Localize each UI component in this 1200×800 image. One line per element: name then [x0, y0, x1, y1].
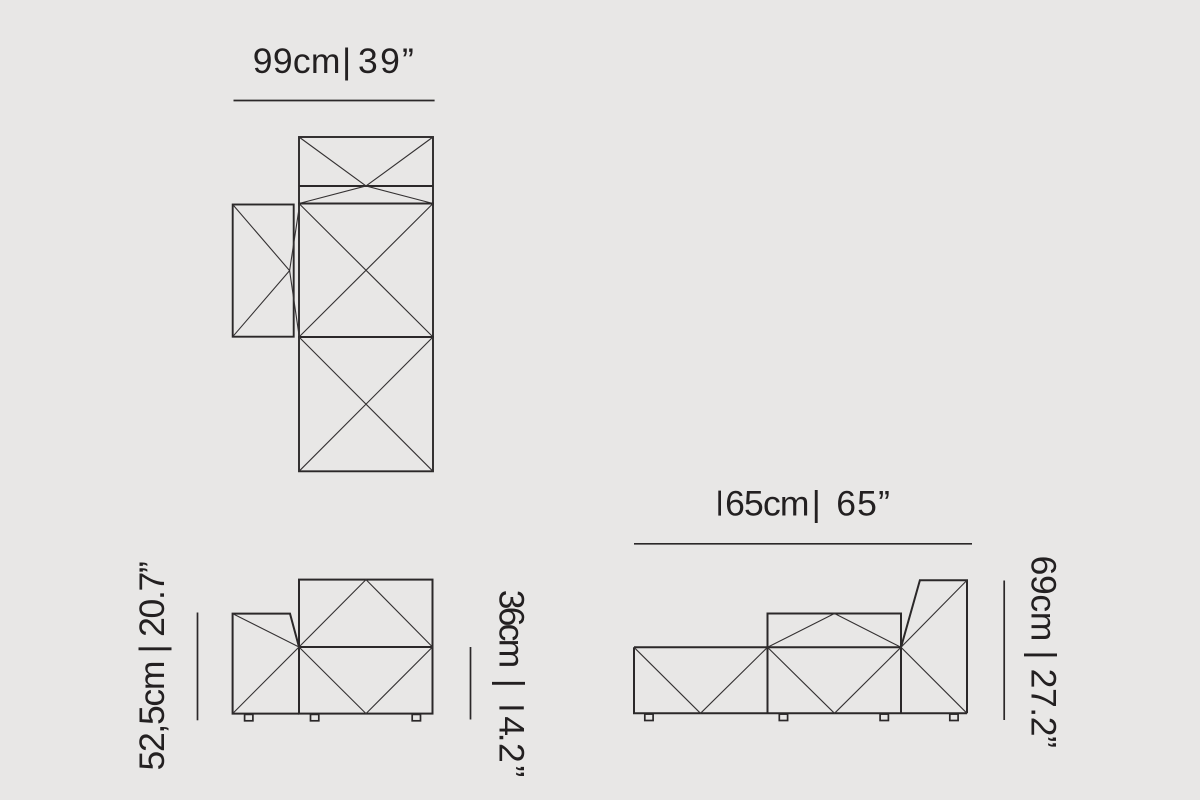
svg-text:69cm | 27.2”: 69cm | 27.2”	[1024, 556, 1064, 748]
svg-text:52,5cm | 20.7”: 52,5cm | 20.7”	[132, 562, 172, 770]
svg-text:65cm|65”: 65cm|65”	[725, 484, 891, 524]
svg-text:99cm|39”: 99cm|39”	[253, 41, 414, 81]
svg-text:36cm|4.2”: 36cm|4.2”	[492, 590, 532, 778]
